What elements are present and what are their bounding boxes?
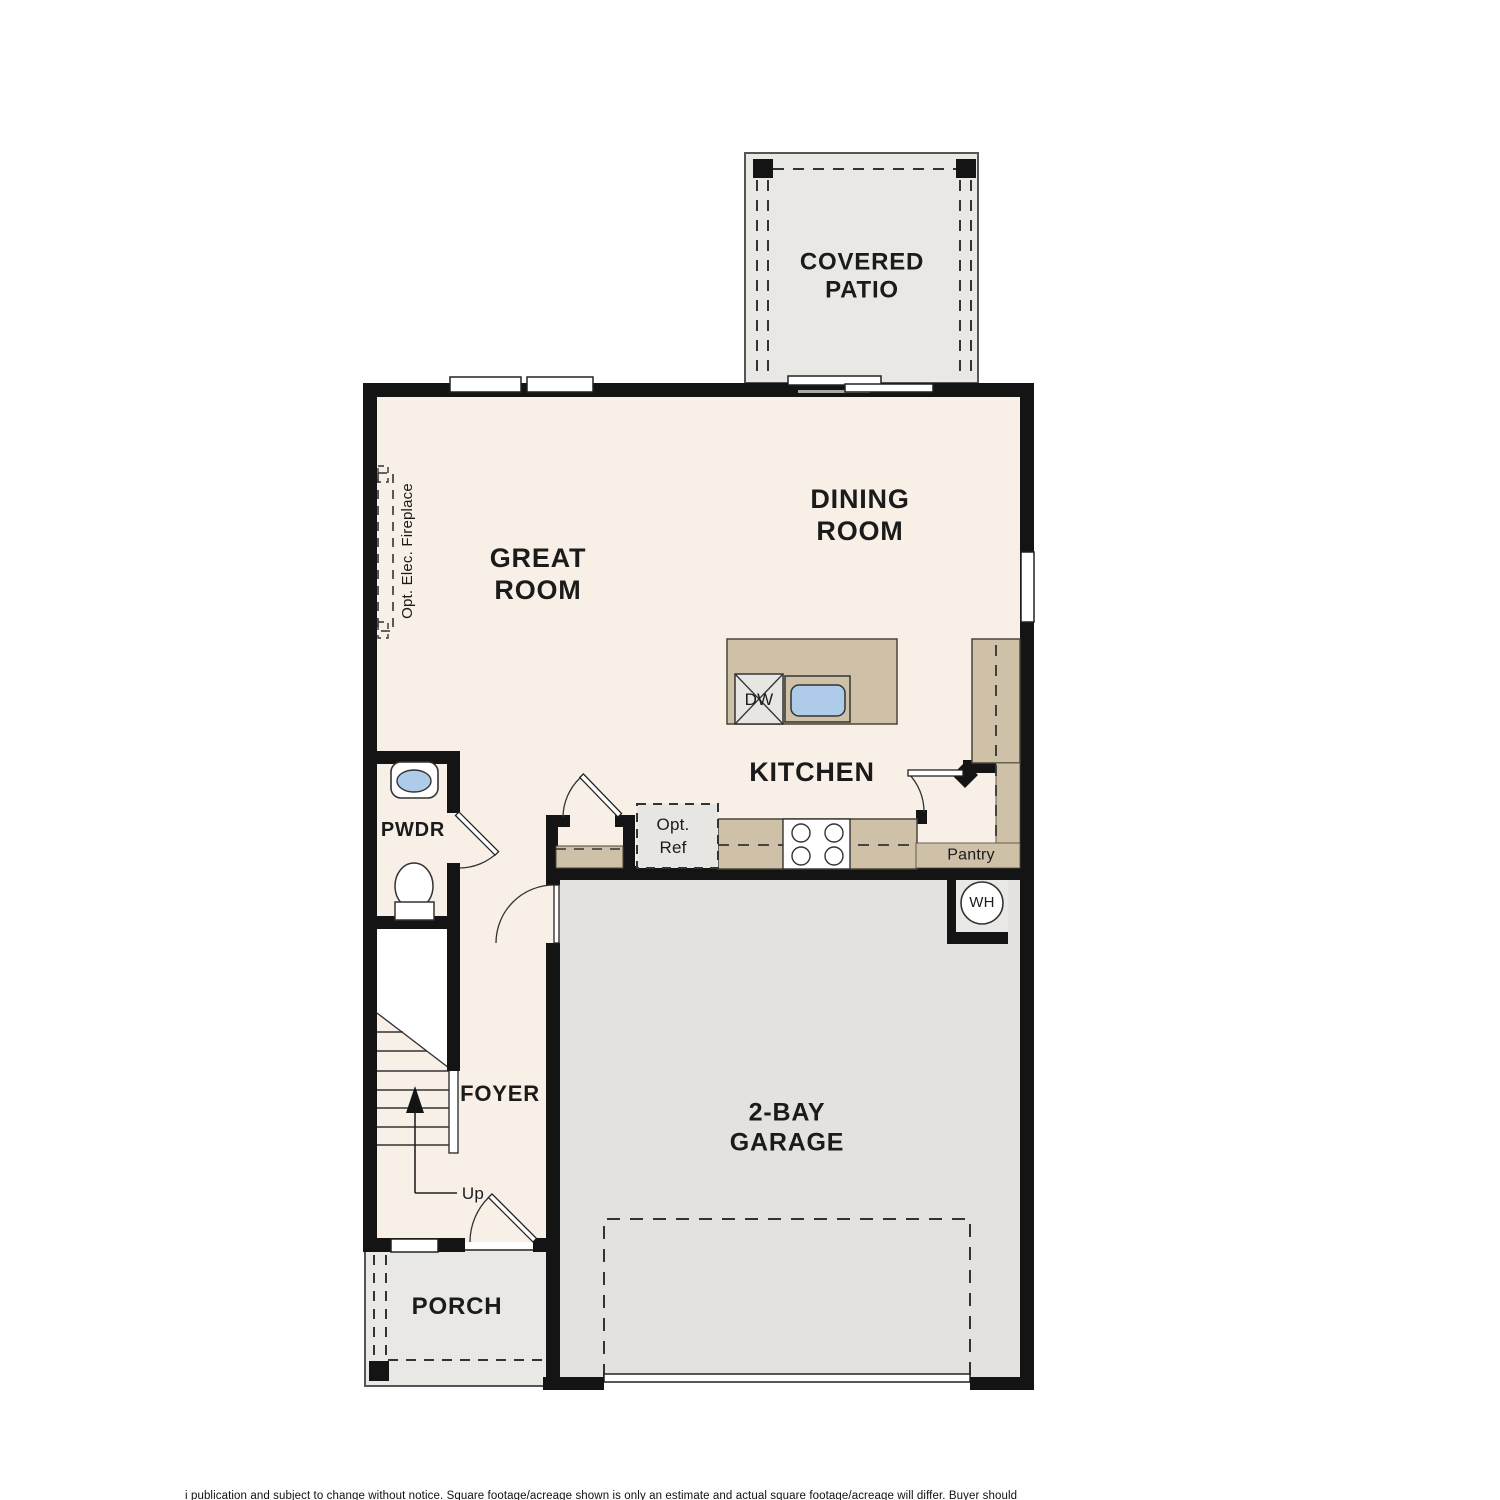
pwdr-sink-basin [397, 770, 431, 792]
dishwasher-label: DW [745, 690, 774, 710]
room-label-pwdr: PWDR [381, 819, 445, 843]
footer-disclaimer: i publication and subject to change with… [185, 1490, 1017, 1500]
window-porch [391, 1239, 438, 1252]
room-label-dining: DINING ROOM [810, 484, 909, 548]
wall-left [363, 383, 377, 1252]
window-great-room-2 [527, 377, 593, 392]
wall-stairs-right [447, 929, 460, 1071]
wall-garage-bottom-right [970, 1377, 1034, 1390]
foyer-floor [455, 760, 555, 1242]
wall-wh-bottom [947, 932, 1008, 944]
wall-closet-stub-left [546, 815, 570, 827]
wall-right [1020, 383, 1034, 1390]
floor-plan-geometry [0, 0, 1500, 1500]
stair-handrail [449, 1068, 458, 1153]
garage-door [604, 1374, 970, 1382]
fireplace-label: Opt. Elec. Fireplace [399, 483, 417, 619]
room-label-porch: PORCH [412, 1293, 503, 1321]
wall-pwdr-right-upper [447, 751, 460, 813]
toilet-tank [395, 902, 434, 920]
window-dining-right [1021, 552, 1034, 622]
window-great-room-1 [450, 377, 521, 392]
opt-ref-label: Opt. Ref [657, 814, 690, 860]
room-label-pantry: Pantry [947, 847, 994, 866]
pantry-door-leaf [908, 770, 963, 776]
sliding-door-panel-2 [845, 384, 933, 392]
porch-post [369, 1361, 389, 1381]
room-label-covered-patio: COVERED PATIO [800, 249, 924, 306]
stairs-up-label: Up [462, 1184, 484, 1204]
wall-garage-left [546, 943, 560, 1390]
room-label-foyer: FOYER [460, 1081, 540, 1107]
room-label-garage: 2-BAY GARAGE [730, 1099, 845, 1158]
patio-post-right [956, 159, 976, 178]
water-heater-label: WH [969, 894, 994, 912]
wall-wh-left [947, 875, 956, 935]
kitchen-counter-right [972, 639, 1020, 763]
room-label-kitchen: KITCHEN [749, 757, 875, 789]
island-sink-basin [791, 685, 845, 716]
floor-plan: COVERED PATIO DINING ROOM GREAT ROOM KIT… [0, 0, 1500, 1500]
wall-garage-bottom-left [543, 1377, 604, 1390]
patio-post-left [753, 159, 773, 178]
wall-pwdr-right-lower [447, 863, 460, 920]
room-label-great: GREAT ROOM [490, 543, 587, 607]
garage-entry-door-leaf [554, 885, 559, 943]
